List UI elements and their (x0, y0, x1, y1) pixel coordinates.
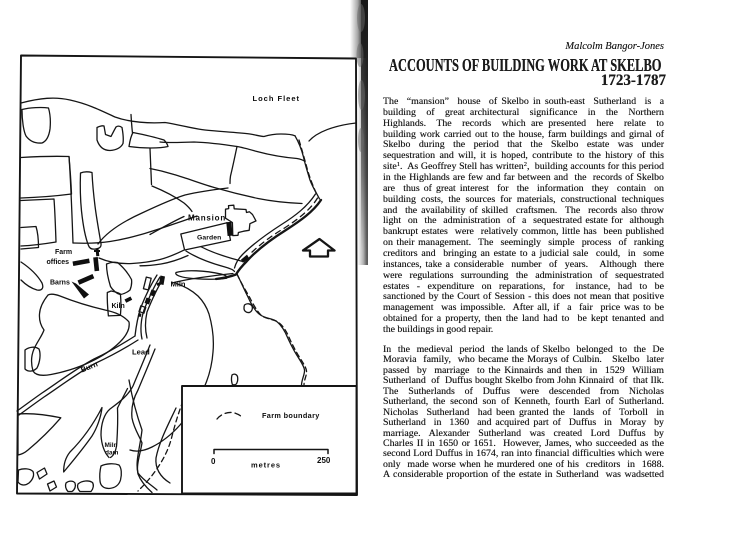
svg-text:dam: dam (105, 450, 119, 457)
svg-text:Garden: Garden (197, 235, 221, 242)
svg-text:Barns: Barns (50, 280, 70, 287)
svg-text:Farm: Farm (55, 249, 72, 256)
svg-text:Mansion: Mansion (188, 214, 226, 223)
svg-text:Farm boundary: Farm boundary (262, 411, 320, 420)
svg-text:Lead: Lead (132, 348, 150, 357)
svg-text:offices: offices (47, 259, 70, 266)
svg-text:Kiln: Kiln (112, 303, 125, 310)
svg-text:metres: metres (251, 461, 281, 470)
svg-text:250: 250 (317, 456, 331, 465)
svg-text:Burn: Burn (79, 359, 99, 374)
svg-text:Miln: Miln (171, 280, 186, 289)
svg-text:0: 0 (211, 457, 216, 466)
svg-text:Loch Fleet: Loch Fleet (253, 94, 301, 103)
svg-text:Miln: Miln (105, 442, 118, 449)
